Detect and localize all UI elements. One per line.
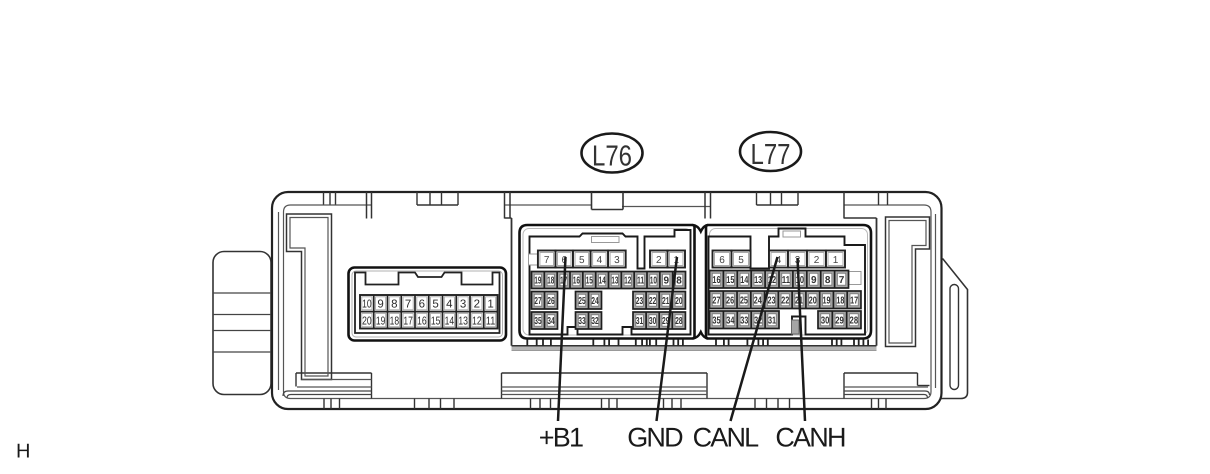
svg-text:23: 23 — [636, 296, 644, 307]
svg-text:35: 35 — [534, 316, 541, 327]
svg-text:L76: L76 — [592, 141, 632, 173]
svg-text:7: 7 — [544, 255, 550, 266]
svg-text:22: 22 — [781, 295, 789, 306]
svg-text:11: 11 — [486, 316, 496, 328]
svg-text:16: 16 — [417, 316, 427, 328]
svg-text:5: 5 — [432, 299, 438, 311]
svg-text:H: H — [16, 441, 30, 463]
svg-text:35: 35 — [712, 315, 720, 326]
svg-text:18: 18 — [390, 316, 400, 328]
svg-text:5: 5 — [579, 255, 585, 266]
svg-text:25: 25 — [578, 296, 585, 307]
svg-text:17: 17 — [850, 295, 858, 306]
svg-text:6: 6 — [719, 255, 725, 266]
svg-text:21: 21 — [662, 296, 670, 307]
svg-text:7: 7 — [839, 275, 845, 286]
svg-text:GND: GND — [627, 423, 683, 453]
svg-text:9: 9 — [663, 276, 669, 287]
svg-text:19: 19 — [823, 295, 831, 306]
svg-text:CANL: CANL — [693, 423, 760, 453]
svg-text:33: 33 — [740, 315, 748, 326]
svg-text:4: 4 — [597, 255, 603, 266]
svg-text:12: 12 — [472, 316, 482, 328]
svg-text:34: 34 — [547, 316, 554, 327]
svg-text:14: 14 — [445, 316, 455, 328]
svg-text:+B1: +B1 — [539, 423, 583, 453]
svg-text:7: 7 — [405, 299, 411, 311]
svg-text:2: 2 — [656, 255, 662, 266]
svg-text:1: 1 — [487, 299, 493, 311]
svg-text:9: 9 — [811, 275, 817, 286]
svg-text:12: 12 — [624, 276, 631, 287]
svg-text:2: 2 — [814, 255, 820, 266]
svg-text:28: 28 — [675, 316, 683, 327]
svg-text:26: 26 — [726, 295, 734, 306]
svg-text:13: 13 — [754, 275, 762, 286]
svg-text:29: 29 — [835, 315, 844, 326]
svg-text:15: 15 — [586, 276, 593, 287]
svg-text:31: 31 — [768, 315, 776, 326]
svg-text:CANH: CANH — [775, 423, 845, 453]
svg-text:18: 18 — [836, 295, 844, 306]
svg-text:5: 5 — [738, 255, 744, 266]
svg-text:15: 15 — [726, 275, 734, 286]
svg-text:19: 19 — [376, 316, 386, 328]
svg-text:14: 14 — [599, 276, 606, 287]
svg-text:20: 20 — [675, 296, 683, 307]
svg-text:10: 10 — [650, 276, 657, 287]
svg-text:23: 23 — [767, 295, 775, 306]
svg-text:19: 19 — [534, 276, 541, 287]
svg-text:24: 24 — [591, 296, 598, 307]
svg-text:28: 28 — [850, 315, 859, 326]
svg-text:2: 2 — [474, 299, 480, 311]
svg-text:4: 4 — [446, 299, 453, 311]
svg-text:34: 34 — [726, 315, 734, 326]
svg-text:8: 8 — [391, 299, 397, 311]
svg-text:25: 25 — [740, 295, 748, 306]
svg-text:31: 31 — [636, 316, 644, 327]
svg-text:22: 22 — [649, 296, 657, 307]
svg-text:14: 14 — [740, 275, 748, 286]
svg-text:24: 24 — [754, 295, 762, 306]
svg-text:10: 10 — [362, 299, 372, 311]
svg-text:6: 6 — [419, 299, 425, 311]
svg-text:3: 3 — [460, 299, 466, 311]
svg-text:33: 33 — [578, 316, 585, 327]
svg-text:13: 13 — [458, 316, 468, 328]
svg-text:11: 11 — [637, 276, 644, 287]
svg-text:11: 11 — [782, 275, 790, 286]
svg-text:3: 3 — [614, 255, 620, 266]
svg-text:18: 18 — [547, 276, 554, 287]
svg-text:10: 10 — [796, 275, 804, 286]
svg-text:8: 8 — [676, 276, 682, 287]
svg-text:9: 9 — [377, 299, 383, 311]
svg-text:20: 20 — [362, 316, 372, 328]
svg-text:32: 32 — [591, 316, 598, 327]
svg-text:15: 15 — [431, 316, 441, 328]
svg-text:30: 30 — [821, 315, 830, 326]
svg-text:13: 13 — [611, 276, 618, 287]
svg-text:1: 1 — [833, 255, 839, 266]
svg-text:17: 17 — [403, 316, 413, 328]
svg-text:27: 27 — [534, 296, 541, 307]
svg-text:27: 27 — [712, 295, 720, 306]
svg-text:16: 16 — [712, 275, 720, 286]
svg-text:L77: L77 — [751, 139, 791, 171]
svg-text:26: 26 — [547, 296, 554, 307]
svg-text:8: 8 — [825, 275, 831, 286]
svg-text:16: 16 — [573, 276, 580, 287]
svg-text:30: 30 — [649, 316, 657, 327]
svg-text:20: 20 — [809, 295, 817, 306]
